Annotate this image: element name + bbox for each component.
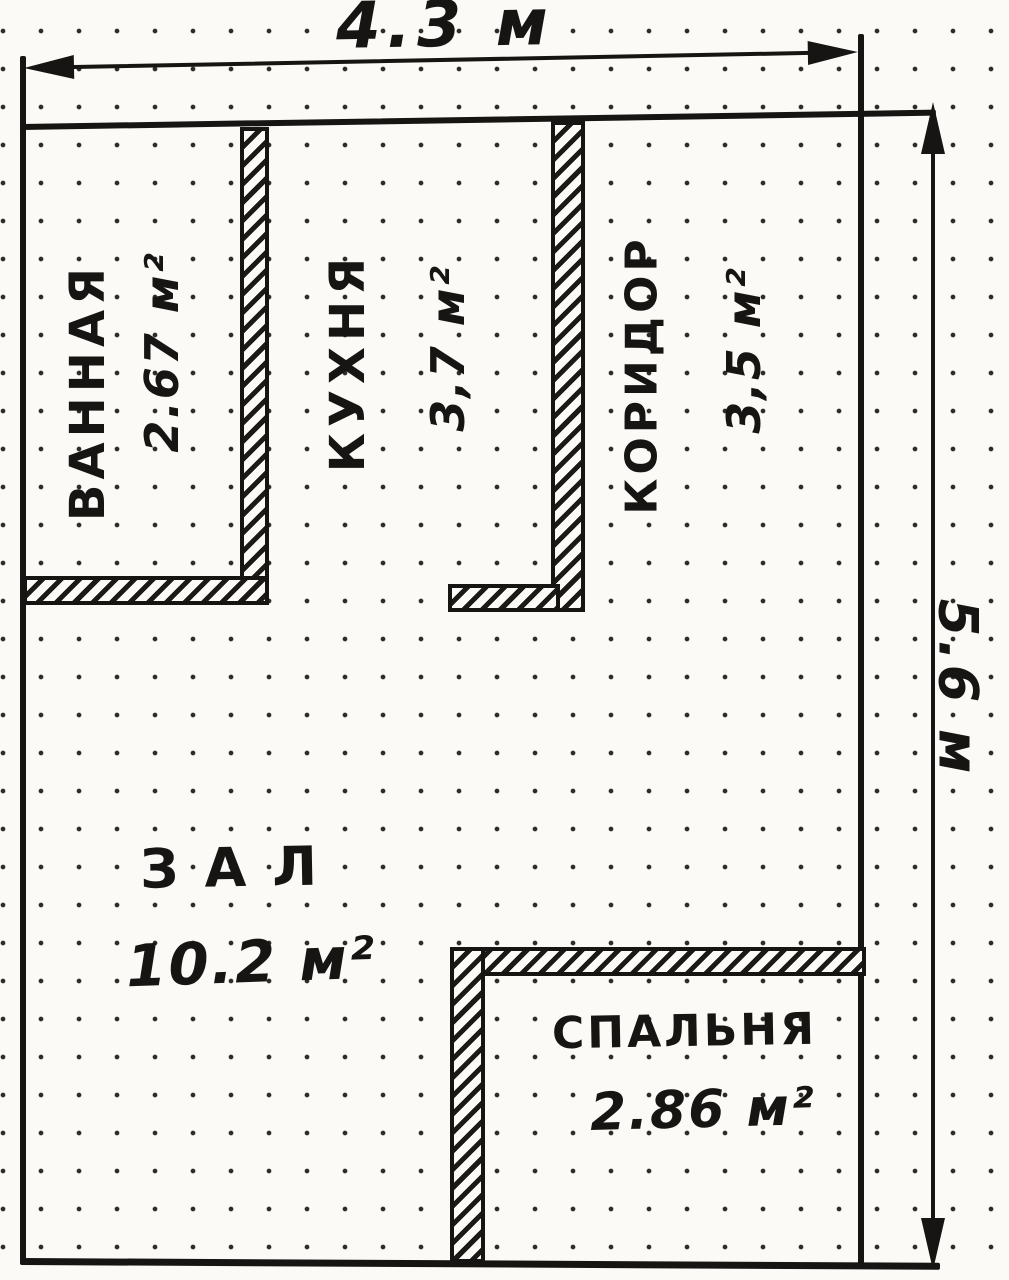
width-dimension-label: 4.3 м (335, 0, 554, 64)
kitchen-wall-vertical (551, 121, 585, 612)
bathroom-name-label: ВАННАЯ (60, 263, 116, 521)
bedroom-name-label: СПАЛЬНЯ (552, 1004, 818, 1060)
arrow-left-icon (24, 55, 74, 80)
bathroom-wall-horizontal (23, 576, 269, 605)
kitchen-wall-horizontal (448, 584, 560, 612)
kitchen-name-label: КУХНЯ (320, 252, 376, 472)
bathroom-area-label: 2.67 м² (135, 251, 189, 452)
wall-right (858, 34, 864, 1266)
height-dimension-label: 5.6 м (927, 599, 990, 778)
bedroom-area-label: 2.86 м² (589, 1077, 816, 1143)
arrow-right-icon (808, 40, 858, 65)
kitchen-area-label: 3,7 м² (421, 264, 475, 431)
bathroom-wall-vertical (240, 127, 269, 604)
floor-plan-sketch: 4.3 м 5.6 м ВАННАЯ 2.67 м² КУХНЯ 3,7 м² … (0, 0, 1009, 1280)
hall-area-label: 10.2 м² (125, 924, 377, 1001)
wall-left (20, 56, 26, 1264)
arrow-down-icon (921, 1218, 945, 1270)
arrow-up-icon (921, 102, 945, 154)
bedroom-wall-vertical (450, 947, 485, 1263)
bedroom-wall-horizontal (452, 947, 866, 976)
corridor-area-label: 3,5 м² (717, 266, 771, 433)
wall-top (20, 110, 936, 130)
hall-name-label: ЗАЛ (139, 834, 343, 901)
corridor-name-label: КОРИДОР (617, 235, 668, 514)
